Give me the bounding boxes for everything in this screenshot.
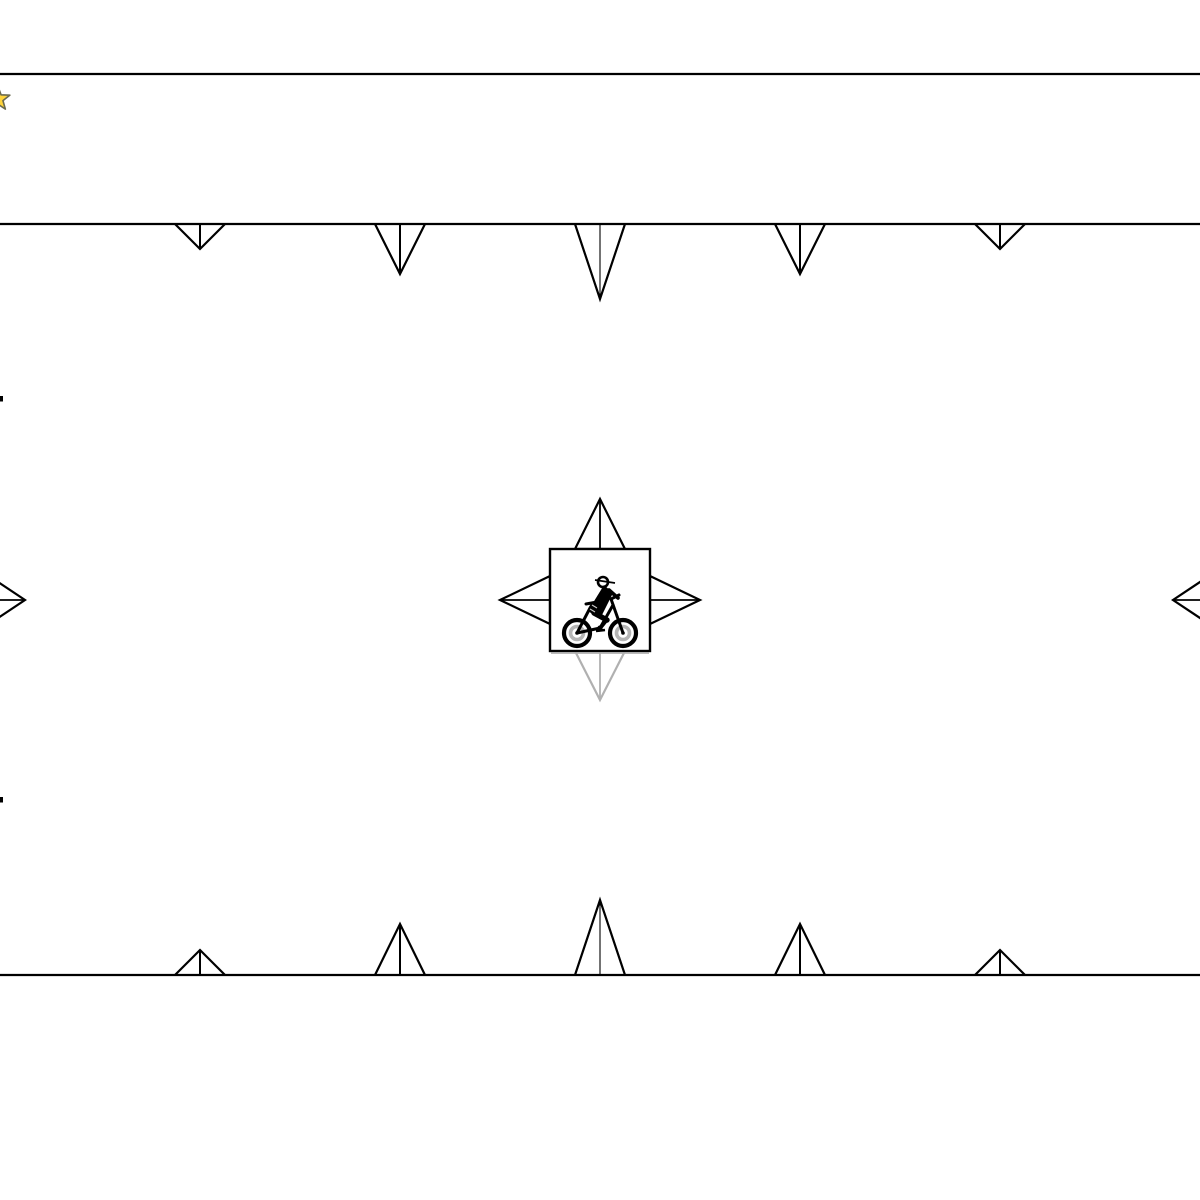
floor-spikes (175, 900, 1025, 975)
game-canvas[interactable] (0, 0, 1200, 1200)
star-icon (0, 87, 10, 110)
ceiling-spikes (175, 224, 1025, 299)
edge-arrow-tip-mark (0, 797, 3, 803)
player-cell (500, 499, 700, 700)
edge-arrow-tip-mark (0, 396, 3, 402)
star-shape (0, 87, 10, 110)
